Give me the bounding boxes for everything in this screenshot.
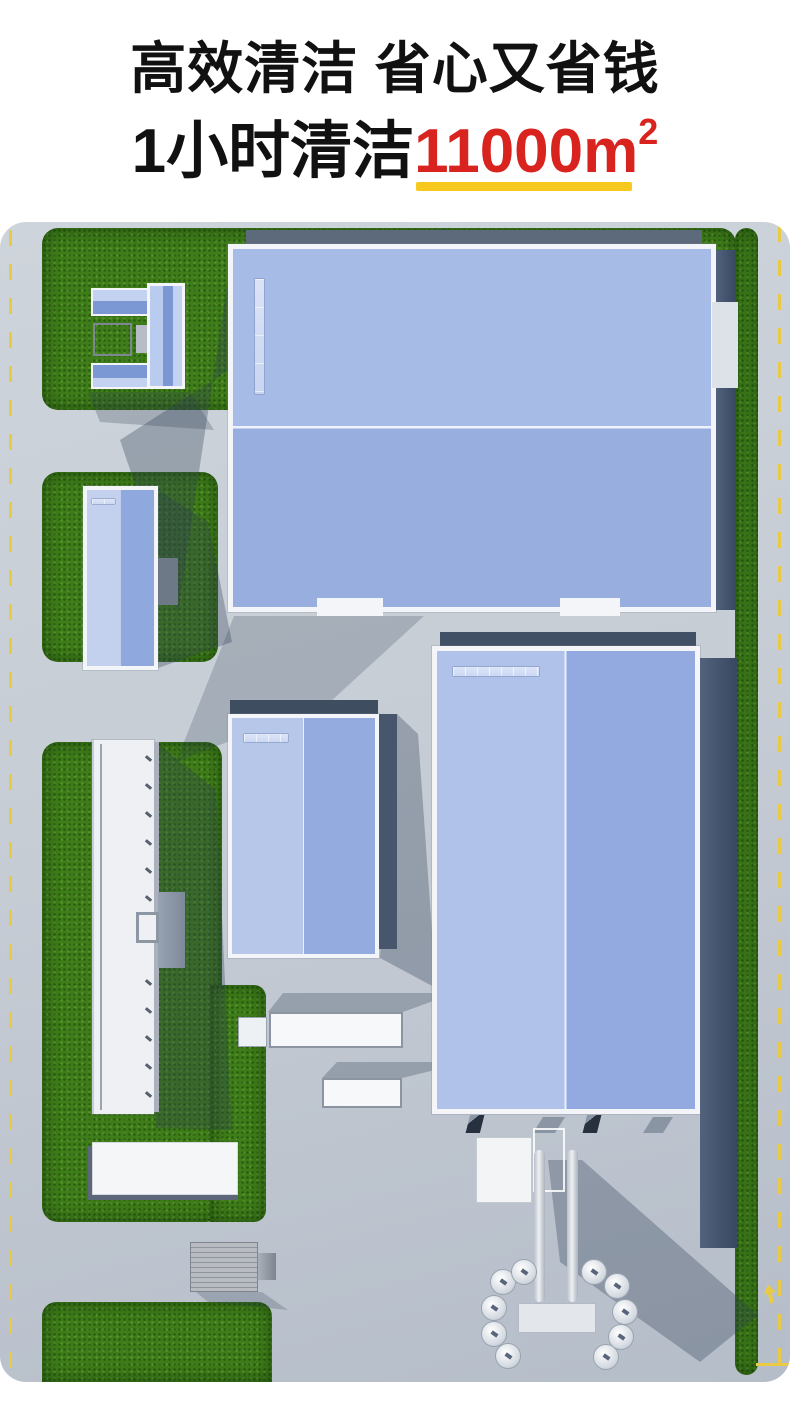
workshop-center-skylights <box>232 718 375 954</box>
silo-base <box>518 1303 596 1333</box>
headline-line2: 1小时清洁11000m2 <box>0 100 790 190</box>
storage-tank <box>581 1259 607 1285</box>
grass-right-strip <box>735 228 758 1375</box>
silo-pipe <box>534 1150 545 1302</box>
warehouse-top-skylights <box>233 249 711 607</box>
warehouse-top-canopy <box>712 302 738 388</box>
semi-truck-trailer <box>269 1012 403 1048</box>
warehouse-right <box>432 646 700 1114</box>
silo-shed <box>476 1137 532 1203</box>
road-marking-right <box>778 226 781 1376</box>
storage-tank <box>604 1273 630 1299</box>
storage-tank <box>495 1343 521 1369</box>
warehouse-right-side-wall <box>700 658 737 1248</box>
logistics-roof-hatch <box>136 912 159 943</box>
workshop-center-side-wall <box>379 714 397 949</box>
box-truck <box>322 1078 402 1108</box>
storage-tank <box>511 1259 537 1285</box>
dock-shadow <box>643 1117 673 1133</box>
warehouse-top-dock-tab <box>560 598 620 616</box>
container-truck-cab <box>258 1253 276 1280</box>
storage-tank <box>612 1299 638 1325</box>
office-wing-south <box>91 363 149 389</box>
headline-line2-prefix: 1小时清洁 <box>132 117 414 186</box>
warehouse-top <box>228 244 716 612</box>
headline-area-highlight: 11000m2 <box>414 111 658 187</box>
storage-tank <box>593 1344 619 1370</box>
headline-area-value: 11000m <box>414 117 638 186</box>
warehouse-right-wall <box>440 632 696 646</box>
silo-pipe <box>567 1150 578 1302</box>
semi-truck-cab <box>238 1017 267 1047</box>
office-main-block <box>147 283 185 389</box>
logistics-roof-line <box>100 744 102 1110</box>
headline-area-superscript: 2 <box>638 111 658 152</box>
grass-bottom <box>42 1302 272 1382</box>
dock-bay <box>583 1115 601 1133</box>
road-stop-line-right <box>756 1363 790 1366</box>
container-truck-body <box>190 1242 258 1292</box>
office-courtyard-fence <box>93 323 132 356</box>
workshop-left-annex <box>158 558 178 605</box>
logistics-annex <box>158 892 185 968</box>
poster-page: 高效清洁 省心又省钱 1小时清洁11000m2 <box>0 0 790 1423</box>
road-marking-left <box>9 230 12 1376</box>
white-shed <box>92 1142 238 1195</box>
workshop-left-skylights <box>87 490 154 666</box>
headline-line1: 高效清洁 省心又省钱 <box>0 24 790 105</box>
workshop-center-wall <box>230 700 378 714</box>
workshop-center <box>228 714 379 958</box>
industrial-park-aerial-view <box>0 222 790 1382</box>
warehouse-right-skylights <box>437 651 695 1109</box>
warehouse-top-dock-tab <box>317 598 383 616</box>
dock-bay <box>466 1115 484 1133</box>
headline-block: 高效清洁 省心又省钱 1小时清洁11000m2 <box>0 0 790 222</box>
workshop-left <box>83 486 158 670</box>
office-wing-north <box>91 288 149 316</box>
storage-tank <box>481 1295 507 1321</box>
